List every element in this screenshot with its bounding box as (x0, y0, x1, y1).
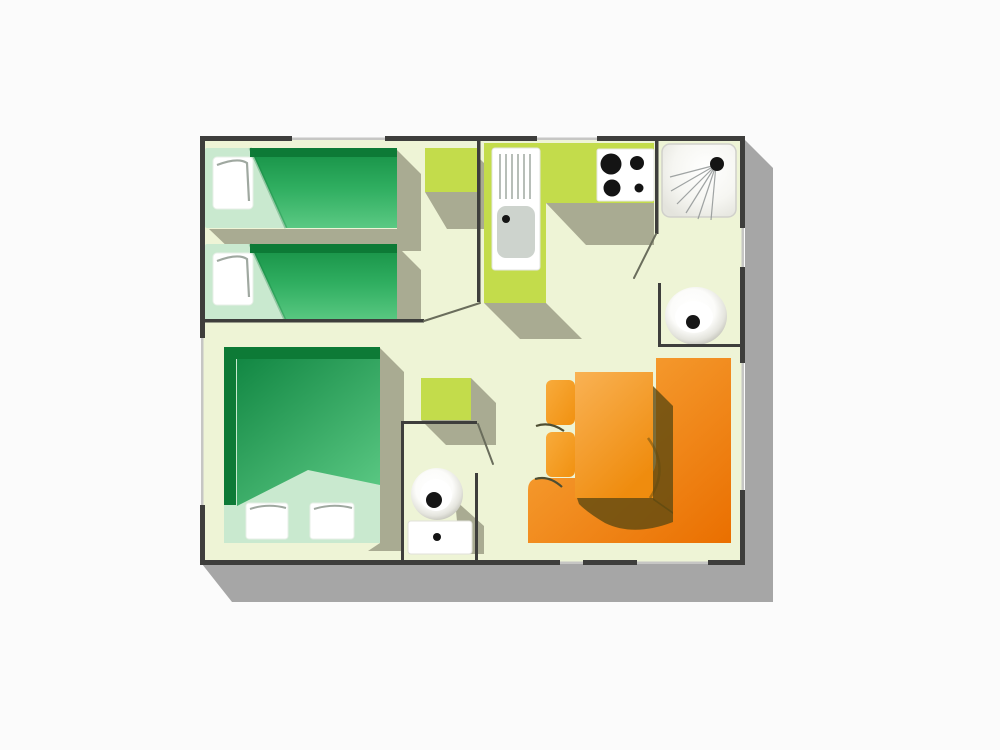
wall-segment (740, 267, 745, 363)
wall-segment (583, 560, 637, 565)
dining-chair-1 (546, 380, 575, 425)
burner (635, 184, 644, 193)
blanket-edge (250, 244, 397, 253)
single-bed-1 (205, 148, 421, 251)
interior-wall (658, 344, 741, 347)
cabinet-top (425, 148, 477, 192)
basin-drain (686, 315, 700, 329)
bed-frame-top (224, 347, 380, 359)
interior-wall (401, 421, 477, 424)
kitchen-sink (492, 148, 540, 270)
burner (604, 180, 621, 197)
bed-frame-left (224, 347, 236, 505)
single-bed-2 (205, 244, 421, 322)
floor-plan-drawing (0, 0, 1000, 750)
cistern-button (433, 533, 441, 541)
sink-basin (497, 206, 535, 258)
wall-segment (200, 560, 560, 565)
window (742, 228, 745, 267)
washbasin (665, 287, 727, 345)
window (292, 138, 385, 141)
window (201, 338, 204, 505)
floor-plan-canvas (0, 0, 1000, 750)
wall-segment (740, 490, 745, 565)
cabinet-top (421, 378, 471, 420)
cooktop (597, 149, 654, 201)
interior-wall (477, 139, 481, 302)
window (637, 562, 708, 565)
dining-table (575, 372, 653, 498)
faucet (502, 215, 510, 223)
wall-segment (740, 136, 745, 228)
shower-head-icon (710, 157, 724, 171)
shower (662, 144, 736, 220)
window (742, 363, 745, 490)
dining-chair-2 (546, 432, 575, 477)
toilet-drain (426, 492, 442, 508)
burner (601, 154, 622, 175)
interior-wall (658, 283, 661, 347)
interior-wall (401, 421, 404, 562)
interior-wall (655, 139, 659, 234)
wall-segment (385, 136, 537, 141)
dining-area (528, 358, 731, 543)
interior-wall (200, 319, 424, 323)
window (560, 562, 583, 565)
wall-segment (200, 505, 205, 565)
window (537, 138, 597, 141)
double-bed (224, 347, 404, 551)
interior-wall (475, 473, 478, 562)
wall-segment (597, 136, 745, 141)
blanket-edge (250, 148, 397, 157)
burner (630, 156, 644, 170)
wall-segment (708, 560, 745, 565)
shower-tray (662, 144, 736, 217)
wall-segment (200, 136, 292, 141)
wall-segment (200, 136, 205, 338)
